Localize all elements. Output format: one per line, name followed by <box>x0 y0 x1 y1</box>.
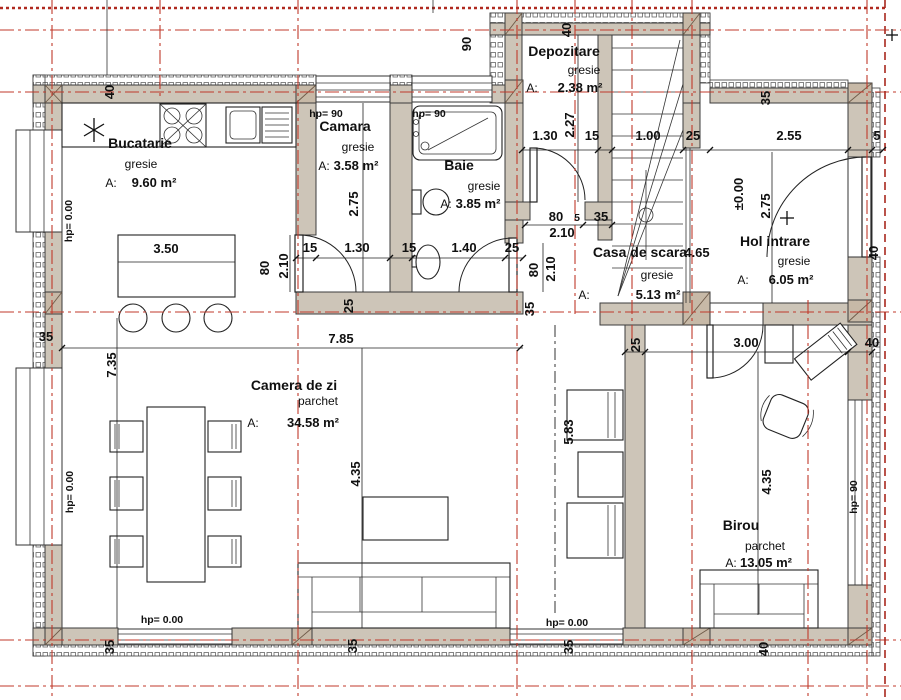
bar-stool <box>204 304 232 332</box>
door-depozitare <box>530 148 585 202</box>
dim-label: 4.35 <box>348 461 363 486</box>
dim-label: 80 <box>549 209 563 224</box>
room-name-depozitare: Depozitare <box>528 43 600 59</box>
room-finish-baie: gresie <box>468 179 501 193</box>
chair <box>208 536 241 567</box>
dim-label: 90 <box>459 37 474 51</box>
room-finish-bucatarie: gresie <box>125 157 158 171</box>
room-area-label-birou: A: <box>725 556 736 570</box>
dim-label: 1.30 <box>344 240 369 255</box>
dim-label: 80 <box>257 261 272 275</box>
room-finish-casa-de-scara: gresie <box>641 268 674 282</box>
dim-label: 35 <box>758 91 773 105</box>
dim-label: ±0.00 <box>731 178 746 210</box>
room-area-birou: 13.05 m² <box>740 555 793 570</box>
dim-label: 3.00 <box>733 335 758 350</box>
dim-label: 35 <box>345 639 360 653</box>
dim-label: 35 <box>561 640 576 654</box>
room-finish-camera-de-zi: parchet <box>298 394 339 408</box>
loveseat <box>700 570 818 628</box>
dim-label: 35 <box>102 640 117 654</box>
kitchen-counter <box>62 103 296 147</box>
dim-label: 1.00 <box>635 128 660 143</box>
dim-label: 40 <box>866 246 881 260</box>
dim-label: 1.30 <box>532 128 557 143</box>
dim-label: 4.35 <box>759 469 774 494</box>
dim-label: 35 <box>522 302 537 316</box>
dim-label: 40 <box>102 85 117 99</box>
dim-label: 25 <box>628 338 643 352</box>
chair <box>208 421 241 452</box>
dim-label: 2.75 <box>758 193 773 218</box>
window-camara-top <box>316 76 390 102</box>
room-finish-hol-intrare: gresie <box>778 254 811 268</box>
kitchen-sink <box>226 107 292 143</box>
armchair-group <box>567 390 623 558</box>
armchair <box>567 503 623 558</box>
side-table <box>578 452 623 497</box>
dim-label: hp= 0.00 <box>64 471 76 513</box>
dim-label: hp= 90 <box>309 108 343 120</box>
room-area-label-baie: A: <box>440 197 451 211</box>
room-area-label-camera-de-zi: A: <box>247 416 258 430</box>
dim-label: 15 <box>303 240 317 255</box>
room-name-camera-de-zi: Camera de zi <box>251 377 337 393</box>
dim-label: 25 <box>686 128 700 143</box>
staircase <box>612 40 690 303</box>
dim-label: 1.40 <box>451 240 476 255</box>
room-area-baie: 3.85 m² <box>456 196 501 211</box>
dim-label: 35 <box>594 209 608 224</box>
dim-label: 3.50 <box>153 241 178 256</box>
room-area-hol-intrare: 6.05 m² <box>769 272 814 287</box>
dim-label: 2.55 <box>776 128 801 143</box>
room-name-hol-intrare: Hol intrare <box>740 233 810 249</box>
dim-label: 2.75 <box>346 191 361 216</box>
room-name-baie: Baie <box>444 157 474 173</box>
dim-label: hp= 0.00 <box>63 200 75 242</box>
dim-label: 5 <box>574 212 580 224</box>
dim-label: 15 <box>402 240 416 255</box>
room-area-label-camara: A: <box>318 159 329 173</box>
room-area-label-hol-intrare: A: <box>737 273 748 287</box>
dim-label: 35 <box>39 329 53 344</box>
room-area-depozitare: 2.38 m² <box>558 80 603 95</box>
chair <box>110 477 143 510</box>
room-area-label-depozitare: A: <box>526 81 537 95</box>
window-baie-top <box>412 76 492 102</box>
sofa <box>298 563 510 628</box>
bar-stool <box>119 304 147 332</box>
chair <box>110 421 143 452</box>
dim-label: 15 <box>585 128 599 143</box>
room-finish-depozitare: gresie <box>568 63 601 77</box>
dim-label: hp= 0.00 <box>546 617 588 629</box>
room-name-casa-de-scara: Casa de scara <box>593 244 687 260</box>
dim-label: hp= 90 <box>412 108 446 120</box>
dim-label: 40 <box>865 335 879 350</box>
dim-label: 2.10 <box>549 225 574 240</box>
dim-label: 25 <box>341 299 356 313</box>
window-left-lower <box>16 368 62 545</box>
dim-label: 7.35 <box>104 352 119 377</box>
dim-label: 7.85 <box>328 331 353 346</box>
chair <box>110 536 143 567</box>
room-extra-casa-de-scara: 4.65 <box>684 245 709 260</box>
chair <box>208 477 241 510</box>
coffee-table <box>363 497 448 540</box>
window-bottom-left <box>118 629 232 644</box>
dim-label: 5.83 <box>561 419 576 444</box>
room-name-birou: Birou <box>723 517 760 533</box>
window-left-upper <box>16 130 62 232</box>
dim-label: 25 <box>505 240 519 255</box>
dim-label: hp= 90 <box>848 480 860 514</box>
room-area-label-bucatarie: A: <box>105 176 116 190</box>
dim-label: 2.27 <box>562 112 577 137</box>
dim-label: 2.10 <box>276 253 291 278</box>
dim-label: 2.10 <box>543 256 558 281</box>
room-area-bucatarie: 9.60 m² <box>132 175 177 190</box>
room-area-casa-de-scara: 5.13 m² <box>636 287 681 302</box>
room-area-label-casa-de-scara: A: <box>578 288 589 302</box>
dim-label: 40 <box>559 23 574 37</box>
office-furniture <box>700 323 857 628</box>
cabinet <box>765 325 793 363</box>
room-name-bucatarie: Bucatarie <box>108 135 172 151</box>
floor-plan: Bucatarie gresie A: 9.60 m² Camara gresi… <box>0 0 901 700</box>
room-area-camera-de-zi: 34.58 m² <box>287 415 340 430</box>
room-finish-camara: gresie <box>342 140 375 154</box>
room-finish-birou: parchet <box>745 539 786 553</box>
room-name-camara: Camara <box>319 118 371 134</box>
dining-table-set <box>110 407 241 582</box>
level-marker-cross <box>780 211 794 225</box>
dim-label: 5 <box>873 128 880 143</box>
bar-stool <box>162 304 190 332</box>
dim-label: hp= 0.00 <box>141 614 183 626</box>
level-marker-cross <box>886 29 898 41</box>
dim-label: 40 <box>756 642 771 656</box>
dim-label: 80 <box>526 263 541 277</box>
room-area-camara: 3.58 m² <box>334 158 379 173</box>
